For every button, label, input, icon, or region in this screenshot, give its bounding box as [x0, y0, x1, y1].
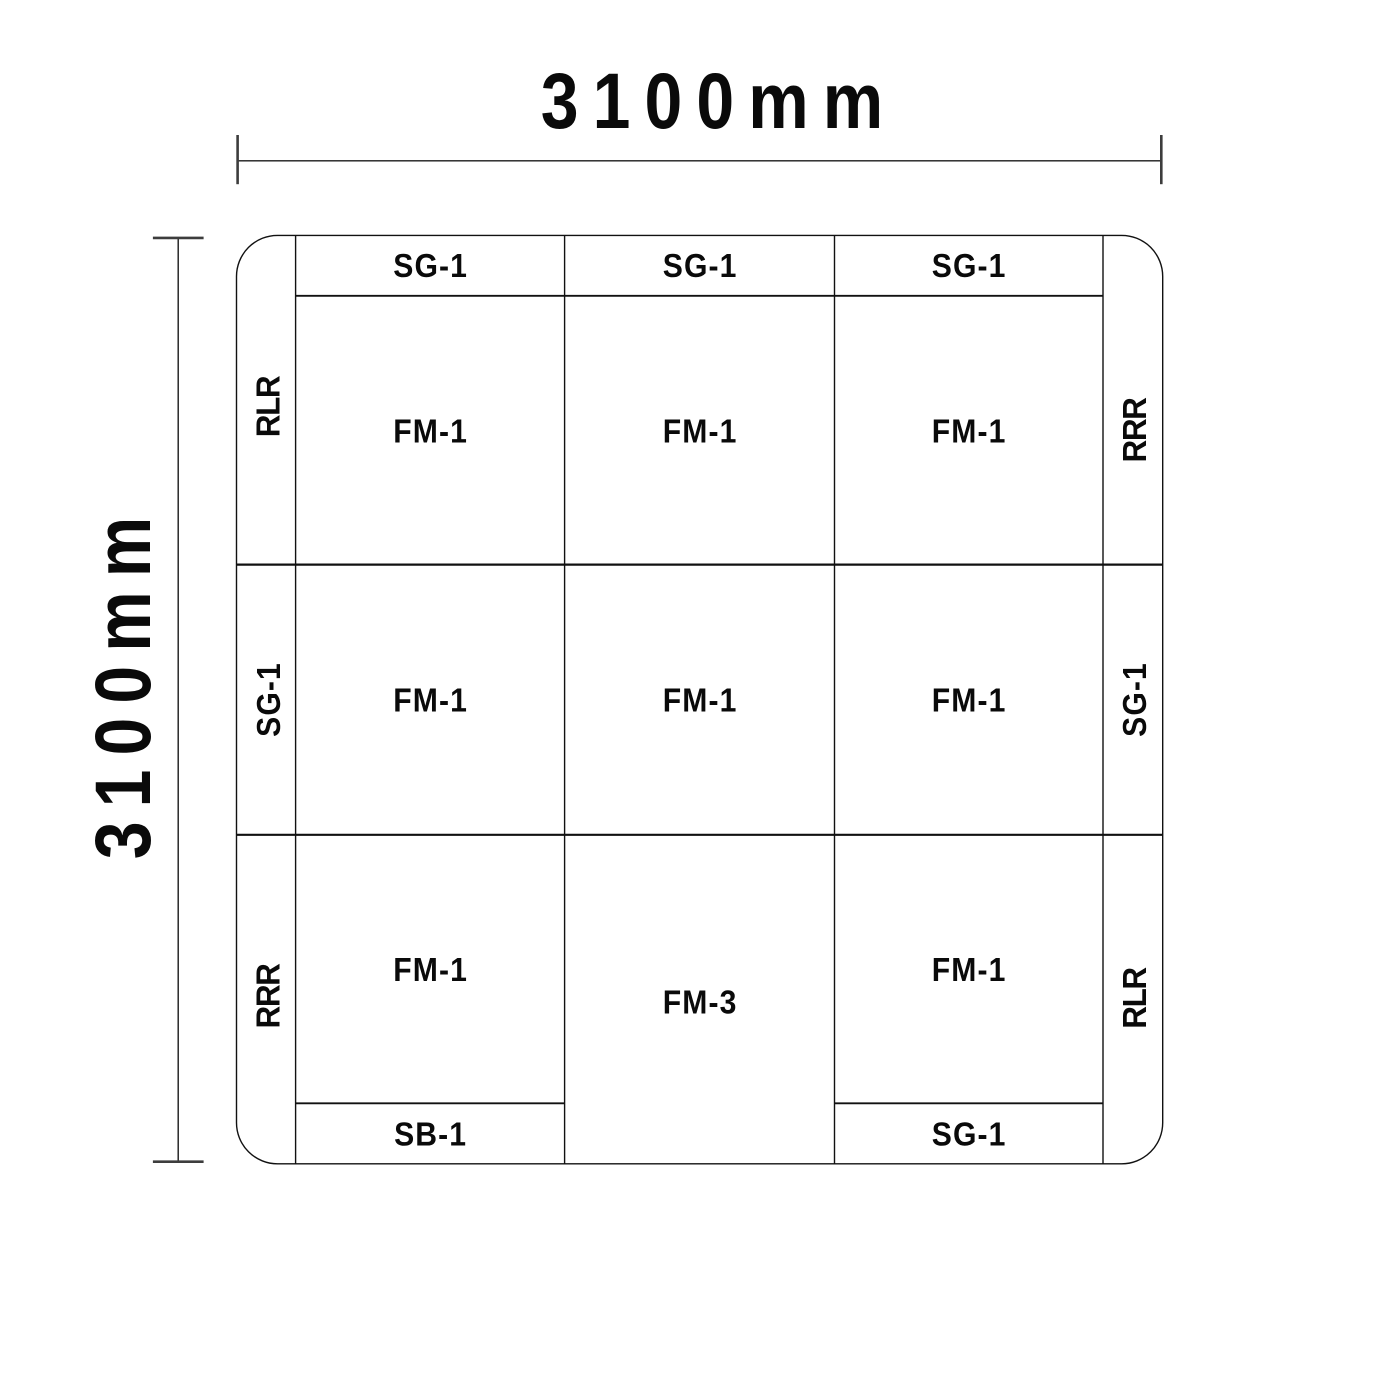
svg-text:SG-1: SG-1 — [250, 662, 288, 737]
svg-text:SG-1: SG-1 — [932, 247, 1007, 285]
svg-text:SG-1: SG-1 — [1116, 662, 1154, 737]
svg-text:SB-1: SB-1 — [394, 1115, 467, 1153]
svg-text:RLR: RLR — [1116, 967, 1153, 1028]
svg-text:SG-1: SG-1 — [932, 1115, 1007, 1153]
svg-text:FM-1: FM-1 — [932, 412, 1007, 450]
svg-text:SG-1: SG-1 — [393, 247, 468, 285]
svg-text:3100mm: 3100mm — [78, 503, 167, 860]
svg-text:FM-1: FM-1 — [393, 681, 468, 719]
svg-text:RRR: RRR — [1116, 398, 1153, 463]
svg-text:FM-1: FM-1 — [932, 951, 1007, 989]
svg-text:FM-1: FM-1 — [663, 681, 738, 719]
svg-text:SG-1: SG-1 — [663, 247, 738, 285]
svg-text:3100mm: 3100mm — [541, 56, 898, 145]
svg-text:FM-1: FM-1 — [393, 412, 468, 450]
svg-text:FM-3: FM-3 — [663, 983, 738, 1021]
svg-text:RLR: RLR — [250, 376, 287, 437]
svg-text:FM-1: FM-1 — [393, 951, 468, 989]
svg-text:FM-1: FM-1 — [932, 681, 1007, 719]
svg-text:RRR: RRR — [250, 964, 287, 1029]
svg-text:FM-1: FM-1 — [663, 412, 738, 450]
